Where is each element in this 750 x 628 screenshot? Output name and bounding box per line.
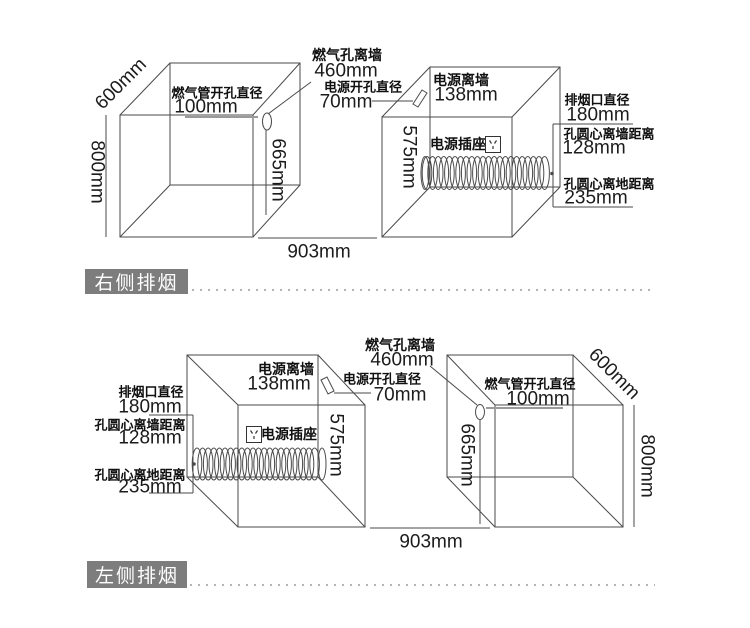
dim-903-top: 903mm	[287, 243, 350, 262]
gas-wall-value-top: 460mm	[314, 62, 377, 81]
section-badge-left-exhaust: 左侧排烟	[87, 561, 187, 588]
exhaust-duct-top	[421, 157, 549, 190]
power-cord-hole-top	[413, 90, 427, 107]
installation-diagram: 600mm 800mm 燃气管开孔直径 100mm 665mm 燃气孔离墙 46…	[0, 0, 750, 628]
power-wall-value-top: 138mm	[434, 86, 497, 105]
dotted-divider-top	[192, 289, 655, 291]
hole-floor-value-top: 235mm	[564, 189, 627, 208]
vent-value-bottom: 180mm	[118, 398, 181, 417]
power-cord-hole-bottom	[321, 377, 334, 394]
dotted-divider-bottom	[190, 584, 655, 586]
dim-665-bottom: 665mm	[458, 423, 477, 486]
hole-wall-value-top: 128mm	[562, 139, 625, 158]
gas-hole-value-top: 100mm	[174, 98, 237, 117]
socket-label-top: 电源插座	[430, 137, 486, 151]
power-hole-value-bottom: 70mm	[374, 386, 427, 405]
leader-460-bottom	[430, 366, 477, 405]
leader-460-top	[268, 82, 311, 114]
vent-value-top: 180mm	[566, 106, 629, 125]
dim-665-top: 665mm	[269, 138, 288, 201]
dim-575-bottom: 575mm	[327, 413, 346, 476]
hole-floor-value-bottom: 235mm	[118, 478, 181, 497]
gas-hole-value-bottom: 100mm	[506, 390, 569, 409]
dim-800-top: 800mm	[88, 140, 107, 203]
dim-575-top: 575mm	[400, 125, 419, 188]
power-socket-icon-top	[485, 136, 501, 153]
dim-903-bottom: 903mm	[399, 533, 462, 552]
exhaust-duct-bottom	[192, 448, 326, 480]
socket-label-bottom: 电源插座	[261, 427, 317, 441]
gas-hole-oval-top	[263, 113, 272, 130]
gas-hole-oval-bottom	[476, 405, 485, 420]
dim-800-bottom: 800mm	[638, 434, 657, 497]
hole-wall-value-bottom: 128mm	[118, 429, 181, 448]
gas-wall-value-bottom: 460mm	[370, 351, 433, 370]
power-socket-icon-bottom	[246, 426, 262, 443]
power-wall-value-bottom: 138mm	[247, 375, 310, 394]
power-hole-value-top: 70mm	[320, 93, 373, 112]
section-badge-right-exhaust: 右侧排烟	[85, 269, 188, 294]
